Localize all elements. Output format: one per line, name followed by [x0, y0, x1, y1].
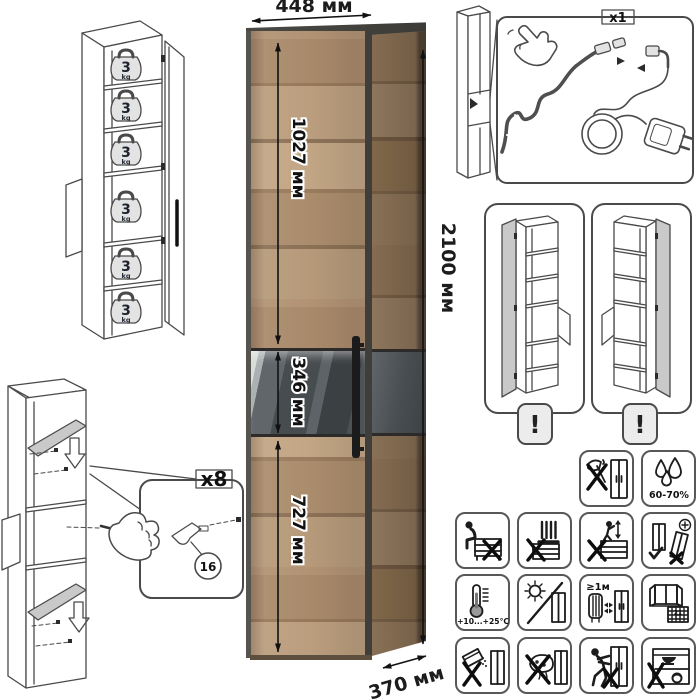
care-icon-heater-distance: ≥1м [579, 574, 634, 631]
care-icon-no-standing [517, 512, 572, 569]
care-icon-no-wet-sponge [517, 637, 572, 694]
variant-left-cabinet [486, 205, 579, 408]
temperature-label: +10...+25°C [457, 617, 509, 626]
care-icon-no-sunlight [517, 574, 572, 631]
care-icon-humidity: 60-70% [641, 450, 696, 507]
no-sitting-icon [460, 518, 506, 564]
no-climbing-icon [584, 518, 630, 564]
distance-label: ≥1м [586, 582, 610, 593]
fastener-quantity-label: x8 [201, 467, 228, 491]
no-direct-sunlight-icon [522, 580, 568, 626]
care-icon-ventilation: 21 [641, 574, 696, 631]
no-wet-sponge-icon [522, 643, 568, 689]
no-heavy-items-icon [646, 643, 692, 689]
shelf-capacity-diagram: 3 kg [0, 5, 230, 350]
heater-distance-icon: ≥1м [584, 580, 630, 626]
warning-badge: ! [517, 403, 553, 445]
display-section-label: 346 мм [288, 357, 308, 426]
warning-symbol: ! [634, 410, 645, 439]
humidity-drops-icon: 60-70% [646, 456, 692, 502]
care-icon-temperature: +10...+25°C [455, 574, 510, 631]
ventilation-calendar-icon: 21 [646, 580, 692, 626]
kit-quantity-label: x1 [609, 11, 626, 26]
no-abrasive-cleaners-icon [460, 643, 506, 689]
care-icon-no-sharp-tools [579, 450, 634, 507]
warning-symbol: ! [529, 410, 540, 439]
care-icon-no-sitting [455, 512, 510, 569]
lower-door-label: 727 мм [288, 495, 308, 564]
height-label: 2100 мм [437, 223, 459, 314]
dimension-annotations: 448 мм 2100 мм 1027 мм 346 мм 727 мм 370… [230, 0, 475, 700]
temperature-range-icon: +10...+25°C [460, 580, 506, 626]
warning-badge: ! [622, 403, 658, 445]
care-icon-do-not-push [579, 637, 634, 694]
calendar-day-label: 21 [673, 609, 681, 616]
variant-left-hinge-panel [484, 203, 585, 414]
level-adjustment-icon [646, 518, 692, 564]
middle-left-flap [66, 179, 82, 257]
open-door [165, 41, 184, 335]
care-icon-no-heavy-items [641, 637, 696, 694]
do-not-push-icon [584, 643, 630, 689]
part-number-label: 16 [200, 560, 217, 574]
mini-cabinet [457, 6, 490, 178]
variant-right-cabinet [593, 205, 686, 408]
depth-label: 370 мм [366, 662, 446, 700]
width-label: 448 мм [275, 0, 352, 17]
lighting-kit-diagram: x1 [452, 2, 700, 190]
no-standing-icon [522, 518, 568, 564]
care-icon-no-abrasive [455, 637, 510, 694]
care-icon-level-adjustment [641, 512, 696, 569]
cabinet-left-face [82, 33, 104, 339]
no-sharp-tools-icon [584, 456, 630, 502]
upper-door-label: 1027 мм [288, 117, 308, 198]
depth-arrow [383, 656, 426, 668]
care-icon-no-climbing [579, 512, 634, 569]
assembly-diagram: x8 16 [0, 348, 250, 700]
furniture-instruction-sheet: 3 kg [0, 0, 700, 700]
humidity-label: 60-70% [649, 490, 689, 501]
variant-right-hinge-panel [591, 203, 692, 414]
